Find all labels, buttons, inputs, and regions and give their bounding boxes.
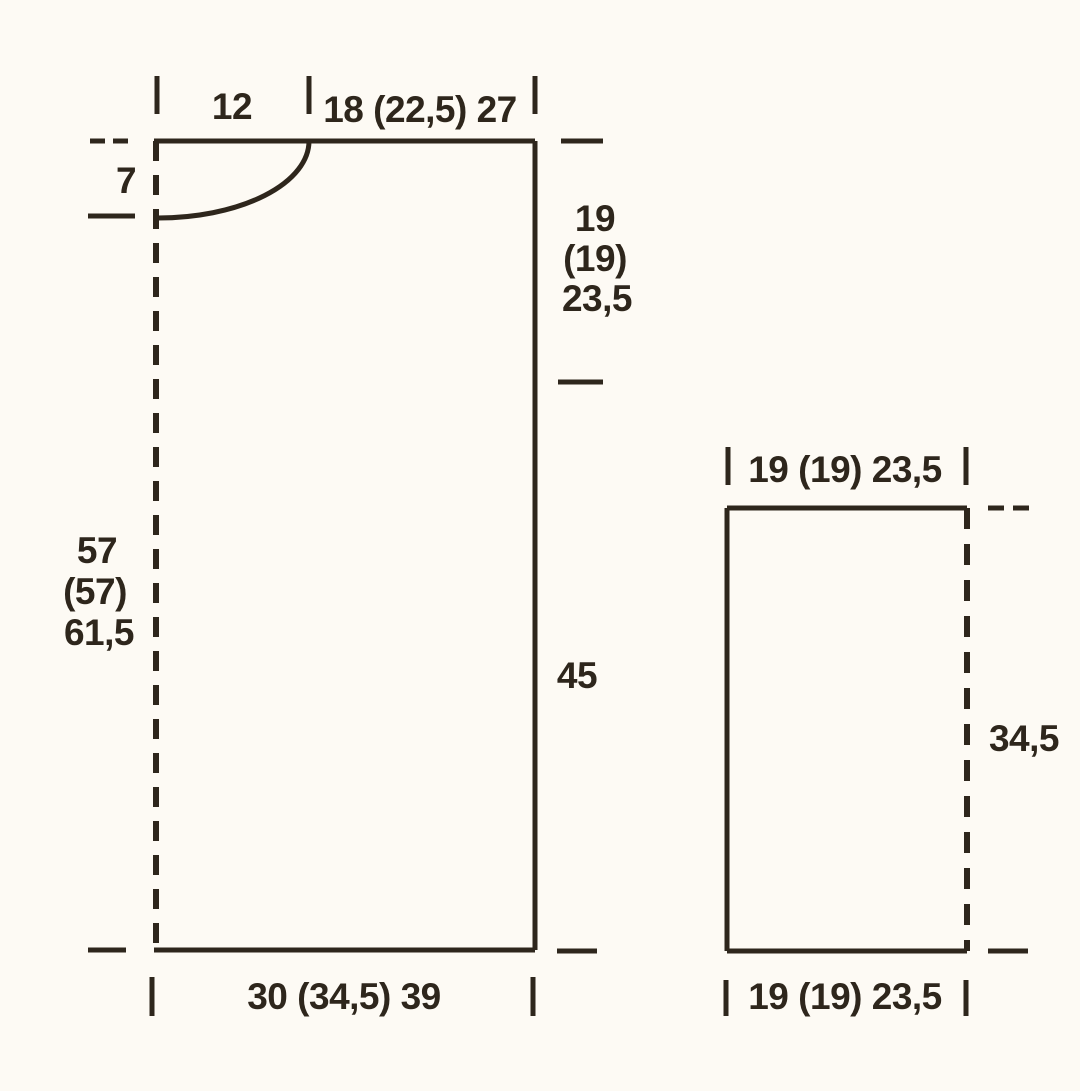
label-total-length-line2: (57) — [63, 571, 127, 612]
label-side-seam-length: 45 — [557, 655, 597, 696]
label-sleeve-seam-length: 34,5 — [989, 718, 1059, 759]
pattern-schematic-diagram: 12 18 (22,5) 27 7 19 (19) 23,5 57 (57) 6… — [0, 0, 1080, 1091]
label-sleeve-top-width: 19 (19) 23,5 — [748, 449, 942, 490]
label-neck-depth: 7 — [116, 160, 136, 201]
label-shoulder-width: 18 (22,5) 27 — [323, 89, 517, 130]
label-total-length-line3: 61,5 — [64, 612, 134, 653]
paper-background — [0, 0, 1080, 1091]
label-armhole-depth-line3: 23,5 — [562, 278, 632, 319]
label-armhole-depth-line1: 19 — [575, 198, 615, 239]
label-hem-width: 30 (34,5) 39 — [247, 976, 441, 1017]
label-armhole-depth-line2: (19) — [563, 238, 627, 279]
label-neck-width: 12 — [212, 86, 252, 127]
scanned-pattern-page: 12 18 (22,5) 27 7 19 (19) 23,5 57 (57) 6… — [0, 0, 1080, 1091]
label-sleeve-bottom-width: 19 (19) 23,5 — [748, 976, 942, 1017]
label-total-length-line1: 57 — [77, 530, 117, 571]
